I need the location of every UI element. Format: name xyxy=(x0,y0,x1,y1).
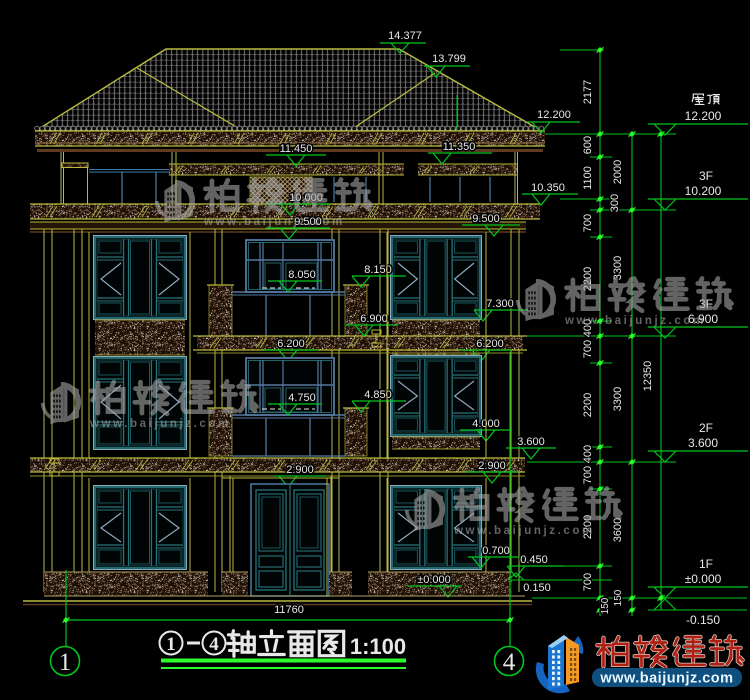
svg-text:1: 1 xyxy=(166,634,176,655)
svg-text:www.baijunjz.com: www.baijunjz.com xyxy=(599,671,733,687)
svg-text:4.850: 4.850 xyxy=(364,389,392,401)
svg-text:1:100: 1:100 xyxy=(350,634,406,659)
svg-text:-0.150: -0.150 xyxy=(686,613,720,627)
svg-text:1: 1 xyxy=(59,649,72,676)
svg-text:13.799: 13.799 xyxy=(432,53,466,65)
svg-text:4: 4 xyxy=(503,649,516,676)
svg-text:2200: 2200 xyxy=(582,393,594,417)
svg-text:10.200: 10.200 xyxy=(685,184,722,198)
svg-text:1F: 1F xyxy=(699,557,713,571)
svg-text:4.750: 4.750 xyxy=(288,392,316,404)
svg-text:10.350: 10.350 xyxy=(531,182,565,194)
svg-text:±0.000: ±0.000 xyxy=(417,574,451,586)
svg-text:6.200: 6.200 xyxy=(476,338,504,350)
svg-text:11.350: 11.350 xyxy=(443,141,476,153)
svg-text:700: 700 xyxy=(582,214,594,232)
svg-text:700: 700 xyxy=(582,466,594,484)
svg-text:2.900: 2.900 xyxy=(286,464,314,476)
svg-text:8.050: 8.050 xyxy=(288,269,316,281)
svg-text:12350: 12350 xyxy=(642,361,654,392)
svg-text:6.200: 6.200 xyxy=(277,338,305,350)
svg-text:2000: 2000 xyxy=(612,160,624,184)
svg-text:3300: 3300 xyxy=(612,387,624,411)
svg-text:3.600: 3.600 xyxy=(517,436,545,448)
svg-text:11.450: 11.450 xyxy=(280,143,313,155)
svg-text:0.150: 0.150 xyxy=(523,582,551,594)
svg-text:8.150: 8.150 xyxy=(364,264,392,276)
svg-text:www.baijunjz.com: www.baijunjz.com xyxy=(453,525,595,537)
svg-text:150: 150 xyxy=(613,589,624,606)
svg-text:www.baijunjz.com: www.baijunjz.com xyxy=(203,216,345,228)
svg-text:2.900: 2.900 xyxy=(478,460,506,472)
svg-text:600: 600 xyxy=(582,136,594,154)
svg-text:400: 400 xyxy=(582,445,594,463)
svg-text:150: 150 xyxy=(600,597,611,614)
svg-text:6.900: 6.900 xyxy=(360,313,388,325)
svg-text:3.600: 3.600 xyxy=(688,436,718,450)
svg-text:3600: 3600 xyxy=(612,518,624,542)
svg-text:4: 4 xyxy=(209,634,219,655)
svg-text:2177: 2177 xyxy=(582,80,594,104)
svg-text:3F: 3F xyxy=(699,169,713,183)
svg-text:±0.000: ±0.000 xyxy=(685,572,722,586)
svg-text:www.baijunjz.com: www.baijunjz.com xyxy=(89,418,231,430)
svg-text:9.500: 9.500 xyxy=(472,213,500,225)
svg-text:700: 700 xyxy=(582,340,594,358)
svg-text:12.200: 12.200 xyxy=(537,109,571,121)
svg-text:700: 700 xyxy=(582,573,594,591)
svg-text:11760: 11760 xyxy=(274,604,304,616)
svg-text:7.300: 7.300 xyxy=(486,298,514,310)
svg-text:1100: 1100 xyxy=(582,166,594,190)
svg-text:0.450: 0.450 xyxy=(520,554,548,566)
svg-text:0.700: 0.700 xyxy=(482,545,510,557)
svg-text:2F: 2F xyxy=(699,421,713,435)
svg-text:14.377: 14.377 xyxy=(388,30,422,42)
svg-text:www.baijunjz.com: www.baijunjz.com xyxy=(564,315,706,327)
svg-text:3300: 3300 xyxy=(612,256,624,280)
svg-text:300: 300 xyxy=(609,194,621,212)
svg-text:12.200: 12.200 xyxy=(685,109,722,123)
